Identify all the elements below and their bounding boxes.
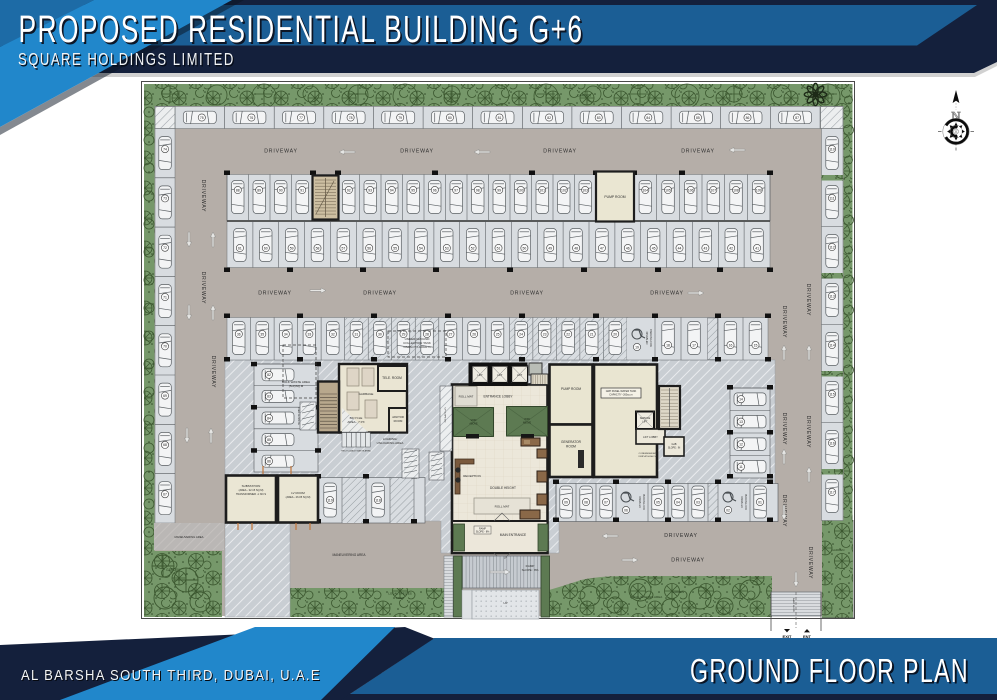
svg-text:LIFT: LIFT (643, 420, 648, 423)
svg-text:UP SLOPE DN: UP SLOPE DN (444, 408, 446, 423)
svg-text:81: 81 (498, 116, 502, 120)
svg-text:GROUND FLOOR PLAN: GROUND FLOOR PLAN (690, 653, 969, 690)
svg-text:03: 03 (696, 500, 700, 504)
svg-text:DRIVEWAY: DRIVEWAY (650, 291, 684, 297)
svg-text:06: 06 (624, 508, 628, 512)
svg-text:23: 23 (543, 332, 547, 336)
svg-text:74: 74 (163, 147, 167, 151)
svg-text:DRIVEWAY: DRIVEWAY (363, 291, 397, 297)
svg-text:ENTRANCE LOBBY: ENTRANCE LOBBY (483, 395, 513, 399)
svg-text:DRIVEWAY: DRIVEWAY (805, 284, 811, 317)
svg-text:56: 56 (367, 246, 371, 250)
svg-text:16: 16 (729, 343, 733, 347)
svg-text:LP: LP (504, 556, 507, 560)
svg-text:DISABLED: DISABLED (740, 496, 743, 508)
svg-text:98: 98 (476, 188, 480, 192)
svg-text:46: 46 (626, 246, 630, 250)
svg-text:61: 61 (238, 246, 242, 250)
svg-text:19: 19 (635, 345, 639, 349)
svg-text:RAMP SLOPE: RAMP SLOPE (792, 598, 795, 613)
svg-text:93: 93 (368, 188, 372, 192)
svg-text:26: 26 (472, 332, 476, 336)
svg-text:83: 83 (597, 116, 601, 120)
svg-text:LOCAL SPECIES AREA: LOCAL SPECIES AREA (630, 595, 662, 599)
svg-text:117: 117 (829, 490, 835, 494)
svg-text:91: 91 (300, 188, 304, 192)
svg-text:MAIN ENTRANCE: MAIN ENTRANCE (500, 533, 526, 537)
svg-text:109: 109 (756, 188, 762, 192)
svg-text:83: 83 (267, 395, 271, 399)
svg-text:44: 44 (678, 246, 682, 250)
svg-text:53: 53 (445, 246, 449, 250)
svg-text:52: 52 (471, 246, 475, 250)
svg-text:GARBAGE: GARBAGE (359, 392, 374, 396)
svg-text:PARKING FOR: PARKING FOR (642, 494, 645, 511)
svg-text:DRIVEWAY: DRIVEWAY (210, 356, 216, 389)
svg-text:118: 118 (375, 498, 381, 502)
svg-text:69: 69 (163, 394, 167, 398)
svg-text:TELE. ROOM: TELE. ROOM (382, 376, 402, 380)
svg-text:29: 29 (402, 332, 406, 336)
svg-text:ABOVE: ABOVE (523, 421, 532, 424)
svg-text:CAPACITY-100cu.m: CAPACITY-100cu.m (403, 345, 431, 349)
svg-text:41: 41 (755, 246, 759, 250)
svg-text:60: 60 (264, 246, 268, 250)
svg-text:36: 36 (237, 332, 241, 336)
svg-text:LV ROOM: LV ROOM (291, 491, 305, 495)
svg-text:GARDEN: GARDEN (832, 548, 845, 552)
svg-text:54: 54 (419, 246, 423, 250)
svg-text:57: 57 (342, 246, 346, 250)
svg-text:DRIVEWAY: DRIVEWAY (258, 291, 292, 297)
svg-text:48: 48 (574, 246, 578, 250)
svg-text:112: 112 (829, 245, 835, 249)
svg-text:GARDEN: GARDEN (672, 590, 684, 594)
svg-text:84: 84 (267, 416, 271, 420)
svg-text:35: 35 (260, 332, 264, 336)
svg-text:GENERATOR: GENERATOR (561, 440, 582, 444)
svg-text:LIFT: LIFT (497, 373, 503, 377)
svg-text:94: 94 (390, 188, 394, 192)
svg-text:SQUARE HOLDINGS LIMITED: SQUARE HOLDINGS LIMITED (18, 50, 235, 69)
svg-text:20: 20 (613, 332, 617, 336)
svg-text:114: 114 (829, 343, 835, 347)
svg-text:71: 71 (163, 295, 167, 299)
svg-text:GRP PANEL WATER TANK: GRP PANEL WATER TANK (606, 390, 637, 393)
svg-text:17: 17 (692, 343, 696, 347)
svg-text:AL BARSHA SOUTH THIRD, DUBAI,: AL BARSHA SOUTH THIRD, DUBAI, U.A.E (21, 666, 321, 683)
svg-text:SUBSTATION: SUBSTATION (242, 484, 261, 488)
svg-text:31: 31 (355, 332, 359, 336)
svg-text:ROLL MAT: ROLL MAT (459, 395, 474, 399)
svg-text:102: 102 (561, 188, 567, 192)
svg-text:LIFT LOBBY: LIFT LOBBY (643, 435, 658, 439)
svg-text:DISABLED: DISABLED (645, 332, 649, 345)
svg-text:TRANSFORMER -1 NO.S: TRANSFORMER -1 NO.S (236, 492, 266, 496)
svg-text:18: 18 (666, 343, 670, 347)
svg-text:108: 108 (733, 188, 739, 192)
svg-text:67: 67 (163, 493, 167, 497)
svg-text:MANEUVERING AREA: MANEUVERING AREA (174, 535, 203, 539)
svg-text:RECEPTION: RECEPTION (463, 474, 481, 478)
svg-text:DRIVEWAY: DRIVEWAY (681, 149, 715, 155)
svg-text:(5x3)SQ.M: (5x3)SQ.M (289, 384, 304, 388)
svg-text:04: 04 (676, 500, 680, 504)
svg-text:ROLL MAT: ROLL MAT (495, 505, 510, 509)
svg-text:116: 116 (829, 441, 835, 445)
svg-text:78: 78 (349, 116, 353, 120)
svg-text:34: 34 (284, 332, 288, 336)
svg-text:88: 88 (236, 188, 240, 192)
svg-text:87: 87 (795, 116, 799, 120)
svg-text:45: 45 (652, 246, 656, 250)
svg-text:70: 70 (163, 345, 167, 349)
svg-text:MANEUVERING AREA: MANEUVERING AREA (332, 553, 366, 557)
svg-text:DRIVEWAY: DRIVEWAY (781, 413, 787, 446)
svg-text:30: 30 (378, 332, 382, 336)
svg-text:DRIVEWAY: DRIVEWAY (671, 558, 705, 564)
svg-text:110: 110 (829, 147, 835, 151)
svg-text:DRIVEWAY: DRIVEWAY (400, 149, 434, 155)
svg-text:86: 86 (746, 116, 750, 120)
svg-text:79: 79 (398, 116, 402, 120)
svg-text:32: 32 (331, 332, 335, 336)
svg-text:ABOVE: ABOVE (469, 422, 478, 425)
svg-text:107: 107 (710, 188, 716, 192)
svg-text:80: 80 (448, 116, 452, 120)
svg-text:95: 95 (411, 188, 415, 192)
svg-text:82: 82 (267, 373, 271, 377)
svg-text:55: 55 (393, 246, 397, 250)
svg-text:90: 90 (279, 188, 283, 192)
svg-text:42: 42 (729, 246, 733, 250)
svg-text:CONDENSER ATR: CONDENSER ATR (639, 452, 658, 455)
svg-text:02: 02 (726, 508, 730, 512)
svg-text:15: 15 (754, 343, 758, 347)
svg-text:UNLOADING AREA: UNLOADING AREA (377, 441, 404, 445)
svg-text:96: 96 (433, 188, 437, 192)
svg-text:43: 43 (704, 246, 708, 250)
svg-text:DRIVEWAY: DRIVEWAY (664, 533, 698, 539)
svg-text:113: 113 (829, 294, 835, 298)
svg-text:103: 103 (582, 188, 588, 192)
svg-text:PUMP ROOM: PUMP ROOM (561, 387, 581, 391)
svg-text:101: 101 (539, 188, 545, 192)
svg-text:89: 89 (257, 188, 261, 192)
svg-text:51: 51 (497, 246, 501, 250)
svg-text:PUMP ROOM: PUMP ROOM (604, 195, 625, 199)
svg-text:106: 106 (688, 188, 694, 192)
svg-text:01: 01 (758, 500, 762, 504)
svg-text:25: 25 (496, 332, 500, 336)
svg-text:13: 13 (739, 420, 743, 424)
svg-text:07: 07 (604, 500, 608, 504)
svg-text:85: 85 (267, 438, 271, 442)
svg-text:33: 33 (308, 332, 312, 336)
svg-text:86: 86 (267, 460, 271, 464)
svg-text:14: 14 (739, 398, 743, 402)
svg-text:AREA - 7 PX: AREA - 7 PX (347, 420, 364, 424)
svg-text:119: 119 (327, 498, 333, 502)
svg-text:104: 104 (642, 188, 648, 192)
svg-text:GARDEN: GARDEN (577, 94, 591, 98)
svg-text:68: 68 (163, 443, 167, 447)
svg-text:92: 92 (347, 188, 351, 192)
svg-text:CAPACITY -260cu.m: CAPACITY -260cu.m (609, 394, 632, 397)
svg-text:(AREA - 26.05 SQ.M): (AREA - 26.05 SQ.M) (286, 495, 311, 499)
svg-text:(AREA - 32.15 SQ.M): (AREA - 32.15 SQ.M) (239, 488, 264, 492)
svg-text:97: 97 (454, 188, 458, 192)
svg-text:DRIVEWAY: DRIVEWAY (200, 272, 206, 305)
svg-text:DRIVEWAY: DRIVEWAY (805, 416, 811, 449)
svg-text:21: 21 (590, 332, 594, 336)
svg-text:DRIVEWAY: DRIVEWAY (264, 149, 298, 155)
svg-text:STAIR SLOPE DN: STAIR SLOPE DN (297, 407, 300, 425)
svg-text:LIFT: LIFT (477, 373, 483, 377)
svg-text:DRIVEWAY: DRIVEWAY (781, 306, 787, 339)
svg-text:111: 111 (829, 196, 834, 200)
svg-text:12: 12 (739, 443, 743, 447)
svg-text:DRIP AT HIGH LVL: DRIP AT HIGH LVL (639, 455, 658, 458)
svg-text:PROPOSED RESIDENTIAL BUILDING: PROPOSED RESIDENTIAL BUILDING G+6 (19, 8, 584, 50)
svg-text:PARKING FOR: PARKING FOR (649, 329, 653, 347)
svg-text:24: 24 (519, 332, 523, 336)
svg-text:08: 08 (584, 500, 588, 504)
svg-text:75: 75 (200, 116, 204, 120)
svg-text:115: 115 (829, 392, 835, 396)
svg-text:28: 28 (425, 332, 429, 336)
svg-text:59: 59 (290, 246, 294, 250)
svg-text:11: 11 (739, 465, 743, 469)
svg-text:85: 85 (696, 116, 700, 120)
svg-text:84: 84 (646, 116, 650, 120)
svg-text:LIFT: LIFT (517, 373, 523, 377)
svg-text:77: 77 (299, 116, 303, 120)
svg-text:58: 58 (316, 246, 320, 250)
svg-text:DISABLED: DISABLED (638, 496, 641, 508)
svg-text:PARKING FOR: PARKING FOR (744, 494, 747, 511)
svg-text:05: 05 (656, 500, 660, 504)
svg-text:27: 27 (449, 332, 453, 336)
svg-text:DRIVEWAY: DRIVEWAY (200, 180, 206, 213)
svg-text:100: 100 (518, 188, 524, 192)
svg-text:DRIVEWAY: DRIVEWAY (543, 149, 577, 155)
svg-text:UP: UP (503, 601, 507, 605)
svg-text:ROOM: ROOM (394, 419, 403, 423)
svg-text:73: 73 (163, 197, 167, 201)
svg-text:ROOM: ROOM (566, 444, 576, 448)
svg-text:RECYCLABLE WASTE AREA: RECYCLABLE WASTE AREA (341, 450, 371, 453)
svg-text:76: 76 (250, 116, 254, 120)
svg-text:SLOPE - 8%: SLOPE - 8% (476, 531, 490, 534)
svg-text:DOUBLE HEIGHT: DOUBLE HEIGHT (490, 486, 516, 490)
svg-text:22: 22 (566, 332, 570, 336)
svg-text:50: 50 (523, 246, 527, 250)
svg-text:49: 49 (548, 246, 552, 250)
svg-text:99: 99 (497, 188, 501, 192)
svg-text:82: 82 (547, 116, 551, 120)
svg-text:09: 09 (564, 500, 568, 504)
svg-text:SLOPE : IN: SLOPE : IN (668, 446, 681, 449)
svg-text:DRIVEWAY: DRIVEWAY (807, 547, 813, 580)
svg-text:SLOPE : 8%: SLOPE : 8% (522, 568, 539, 572)
svg-text:AREA: AREA (396, 596, 404, 600)
svg-text:72: 72 (163, 246, 167, 250)
svg-text:47: 47 (600, 246, 604, 250)
svg-text:DRIVEWAY: DRIVEWAY (510, 291, 544, 297)
svg-text:105: 105 (665, 188, 671, 192)
